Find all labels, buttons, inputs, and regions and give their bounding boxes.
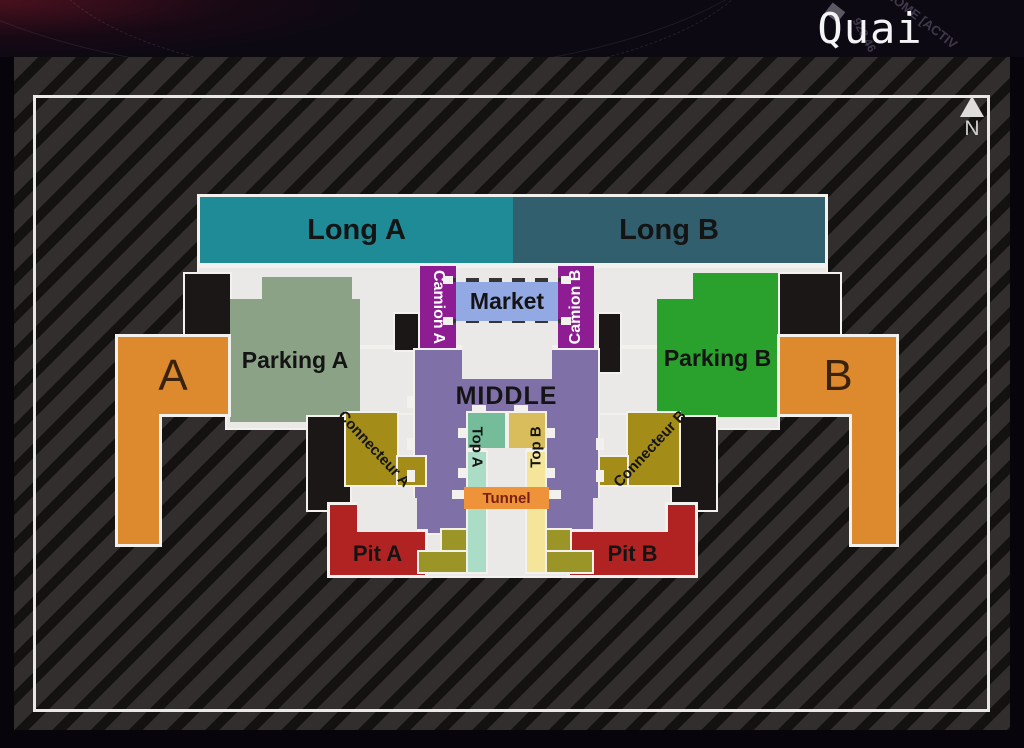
- map-screen: N Long A Long B Parking A Parking B Cami…: [0, 0, 1024, 748]
- zone-long-a: Long A: [200, 197, 513, 263]
- zone-market: Market: [456, 282, 558, 321]
- door-tick: [472, 405, 486, 412]
- door-tick: [458, 468, 467, 478]
- door-tick: [443, 276, 453, 284]
- door-tick: [596, 470, 604, 482]
- zone-spawn-b: B: [780, 337, 896, 414]
- door-tick: [452, 490, 464, 499]
- zone-long-block: Long A Long B: [197, 194, 828, 266]
- page-title: Quai: [792, 0, 948, 57]
- top-block-court: [486, 448, 526, 490]
- header-bar: GENOME [ACTIV 928 46 Quai: [0, 0, 1024, 57]
- zone-top-a-strip: [466, 450, 488, 574]
- zone-parking-a: Parking A: [230, 299, 360, 422]
- north-arrow-icon: [960, 96, 984, 117]
- door-tick: [561, 276, 571, 284]
- zone-parking-b: Parking B: [657, 299, 778, 417]
- door-tick: [549, 490, 561, 499]
- door-tick: [596, 438, 604, 450]
- room-above-pit-a: [357, 498, 417, 532]
- room-above-pit-b: [593, 498, 665, 532]
- zone-tunnel: Tunnel: [464, 487, 549, 509]
- north-label: N: [958, 117, 986, 141]
- door-tick: [546, 428, 555, 438]
- door-tick: [514, 405, 528, 412]
- door-tick: [458, 428, 467, 438]
- door-tick: [407, 470, 415, 482]
- zone-pit-a: Pit A: [330, 532, 425, 575]
- door-tick: [561, 317, 571, 325]
- top-block-lower-room: [488, 508, 525, 574]
- olive-area-right-ext: [543, 550, 594, 574]
- zone-long-b: Long B: [513, 197, 825, 263]
- door-tick: [443, 317, 453, 325]
- door-tick: [546, 468, 555, 478]
- door-tick: [407, 438, 415, 450]
- zone-top-b-label: Top B: [528, 426, 545, 467]
- door-tick: [407, 396, 415, 408]
- zone-top-a-label: Top A: [469, 427, 486, 468]
- room-below-market: [462, 325, 552, 379]
- wall-block-center-right: [597, 312, 622, 374]
- olive-area-left-ext: [417, 550, 468, 574]
- zone-spawn-a: A: [118, 337, 228, 414]
- wall-block-center-left: [393, 312, 420, 352]
- zone-middle-label: MIDDLE: [413, 382, 600, 410]
- zone-top-b-strip: [525, 450, 547, 574]
